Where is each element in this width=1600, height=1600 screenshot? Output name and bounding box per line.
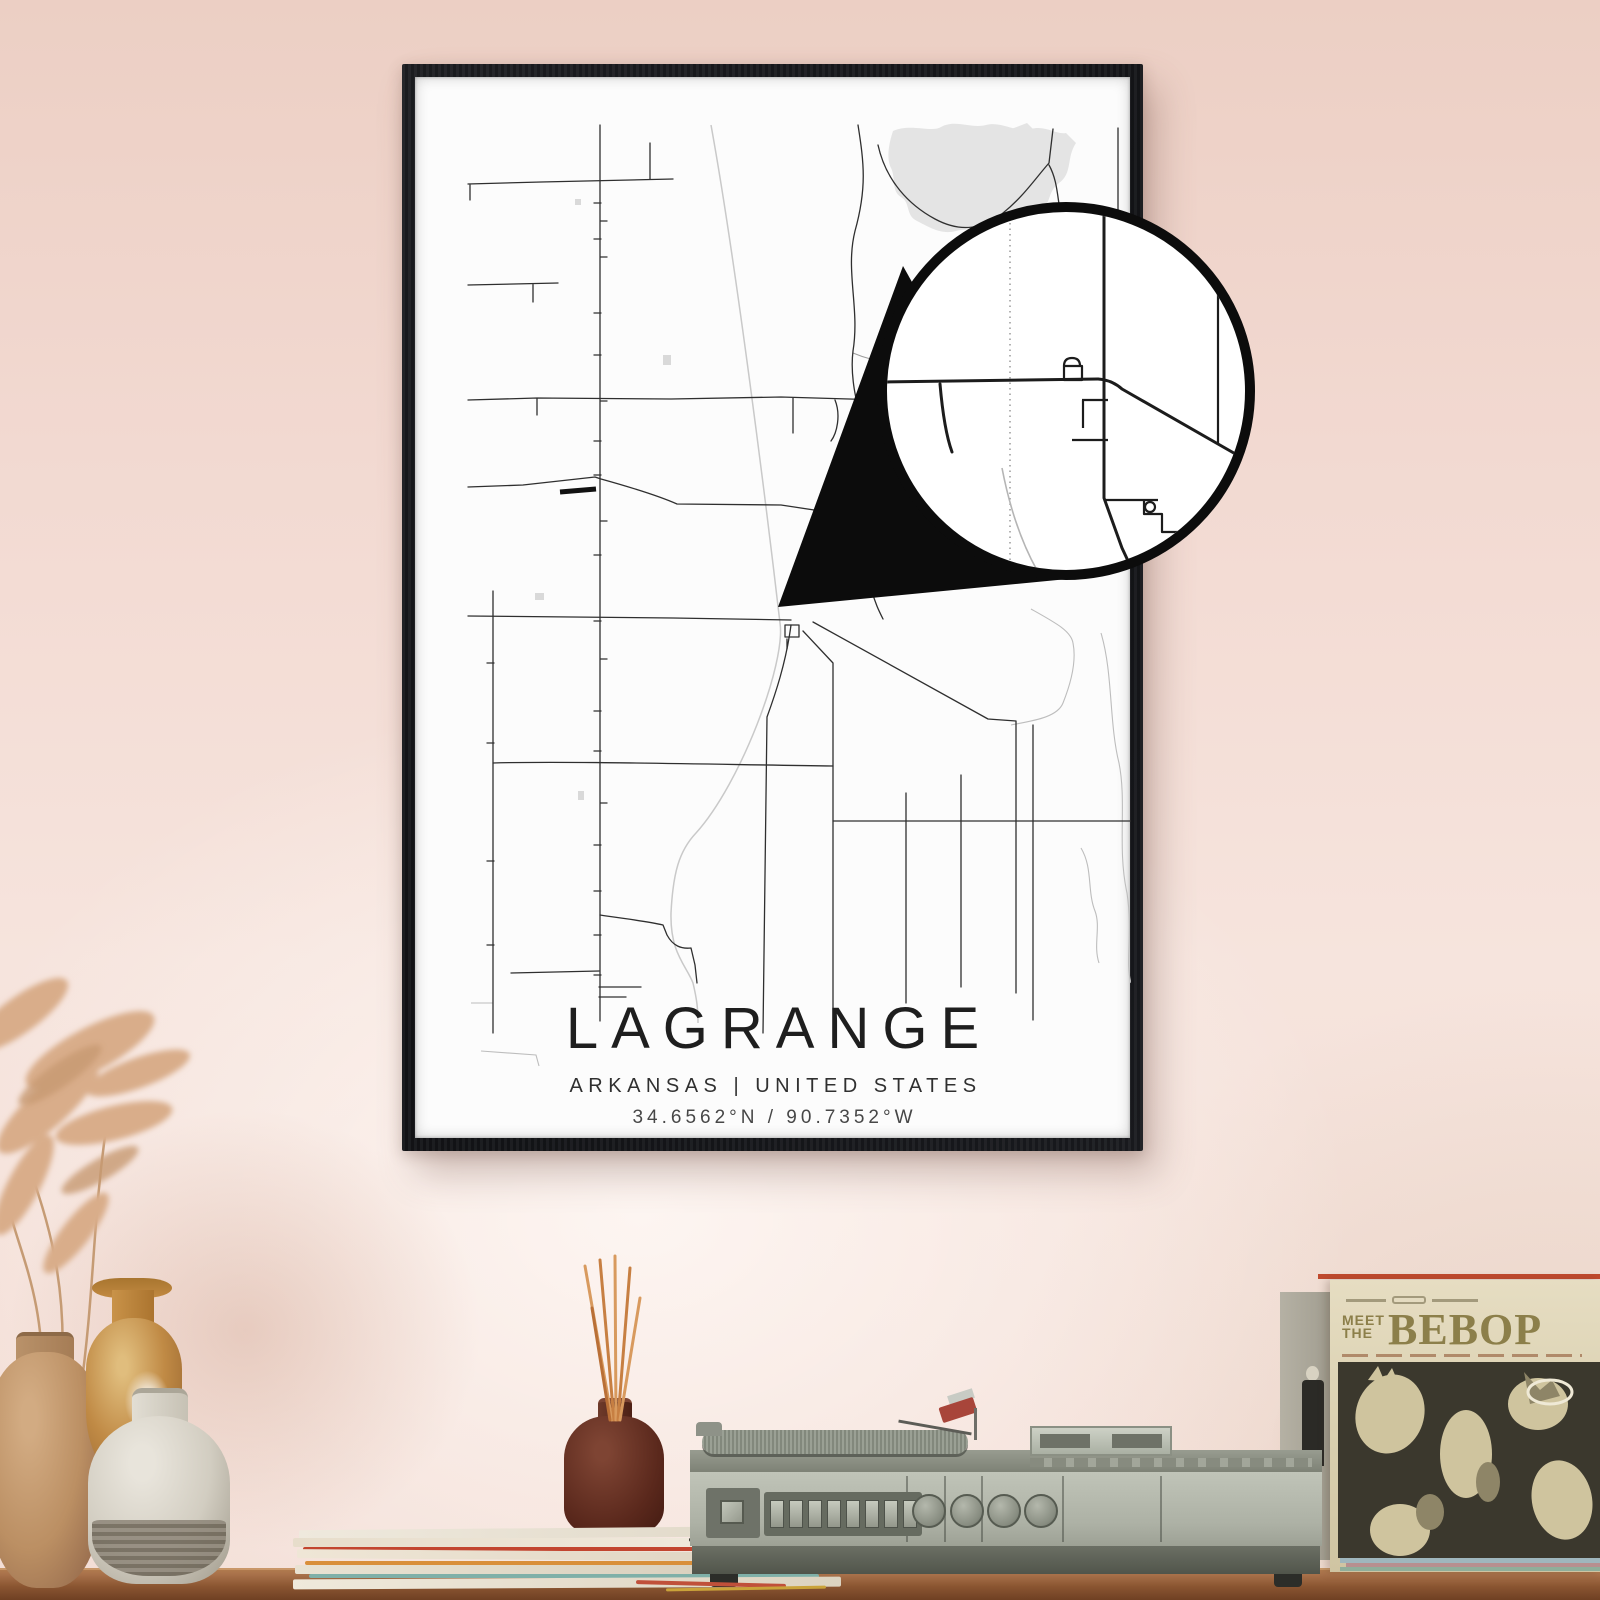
volume-knob xyxy=(912,1494,946,1528)
building-footprints xyxy=(535,199,671,800)
poster-text-block: LAGRANGE ARKANSAS | UNITED STATES 34.656… xyxy=(415,995,1130,1129)
poster-title: LAGRANGE xyxy=(415,995,1130,1062)
bass-knob xyxy=(950,1494,984,1528)
poster-subtitle: ARKANSAS | UNITED STATES xyxy=(415,1075,1130,1098)
bottle-body xyxy=(564,1416,664,1534)
cassette-lid xyxy=(1030,1426,1172,1456)
panel-seam xyxy=(1062,1476,1064,1542)
sleeve-subtitle-decor xyxy=(1342,1354,1582,1357)
tan-vase-body xyxy=(0,1352,98,1588)
sleeve-artwork xyxy=(1338,1362,1600,1558)
tonearm-pivot-pin xyxy=(974,1408,977,1440)
power-button xyxy=(706,1488,760,1538)
record-edge xyxy=(1340,1567,1600,1571)
yellow-pencil xyxy=(666,1586,826,1592)
turntable-platter xyxy=(702,1430,968,1454)
bold-road-segment xyxy=(560,489,596,492)
incense-reed-sticks xyxy=(552,1238,682,1433)
vinyl-record-sleeve-group: MEET THE BEBOP xyxy=(1276,1270,1600,1582)
pencils-on-shelf xyxy=(636,1578,846,1596)
player-base xyxy=(692,1546,1320,1574)
tuning-knob xyxy=(1024,1494,1058,1528)
treble-knob xyxy=(987,1494,1021,1528)
preset-button-row xyxy=(764,1492,922,1536)
room-scene: LAGRANGE ARKANSAS | UNITED STATES 34.656… xyxy=(0,0,1600,1600)
platter-corner-tab xyxy=(696,1422,722,1436)
backing-figure-head xyxy=(1306,1366,1319,1381)
tonearm-cartridge-red xyxy=(938,1397,977,1423)
sleeve-title: BEBOP xyxy=(1388,1304,1542,1355)
record-player xyxy=(690,1392,1322,1592)
poster-coordinates: 34.6562°N / 90.7352°W xyxy=(415,1107,1130,1129)
sleeve-top-decor xyxy=(1346,1296,1526,1304)
magnifier-detail-circle xyxy=(740,178,1285,623)
sleeve-topline-decor xyxy=(1346,1299,1386,1302)
player-foot xyxy=(1274,1574,1302,1587)
sleeve-the-label: THE xyxy=(1342,1327,1373,1340)
records-under-sleeve xyxy=(1340,1558,1600,1572)
panel-seam xyxy=(1160,1476,1162,1542)
small-key-row xyxy=(1030,1458,1312,1467)
sleeve-top-logo xyxy=(1392,1296,1426,1304)
white-vase xyxy=(88,1388,232,1590)
sleeve-topline-decor xyxy=(1432,1299,1478,1302)
record-edge-red xyxy=(1318,1274,1600,1279)
